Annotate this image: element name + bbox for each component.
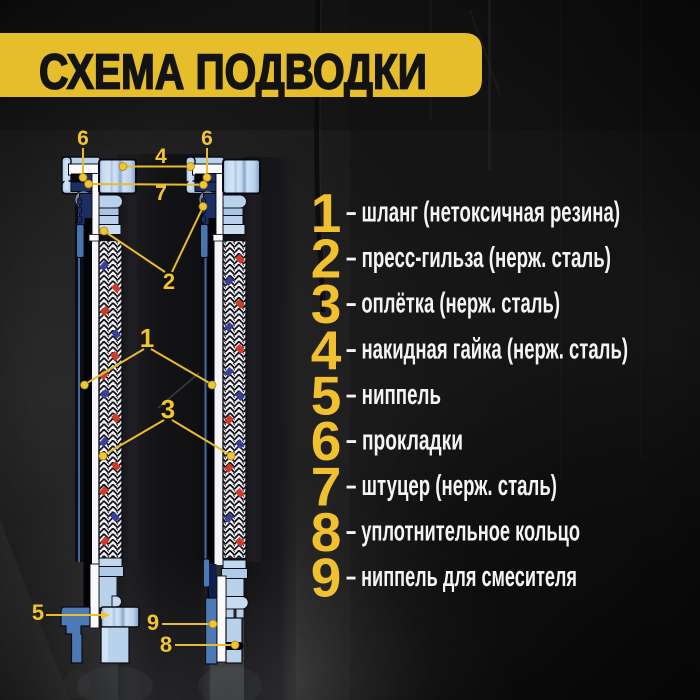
svg-text:2: 2 [163, 269, 175, 294]
svg-text:8: 8 [160, 632, 172, 657]
svg-text:9: 9 [147, 610, 159, 635]
svg-text:– штуцер (нерж. сталь): – штуцер (нерж. сталь) [346, 470, 557, 502]
svg-text:– ниппель: – ниппель [346, 379, 441, 411]
svg-text:4: 4 [155, 145, 167, 168]
svg-text:– оплётка (нерж. сталь): – оплётка (нерж. сталь) [346, 288, 560, 320]
svg-text:– уплотнительное кольцо: – уплотнительное кольцо [346, 516, 580, 548]
svg-text:– прокладки: – прокладки [346, 424, 463, 456]
svg-text:– пресс-гильза (нерж. сталь): – пресс-гильза (нерж. сталь) [346, 242, 611, 274]
svg-text:– накидная гайка (нерж. сталь): – накидная гайка (нерж. сталь) [346, 333, 628, 365]
svg-text:6: 6 [77, 127, 89, 150]
svg-text:СХЕМА ПОДВОДКИ: СХЕМА ПОДВОДКИ [39, 46, 427, 100]
svg-text:6: 6 [201, 127, 213, 150]
svg-text:5: 5 [32, 600, 44, 625]
svg-text:– шланг (нетоксичная резина): – шланг (нетоксичная резина) [346, 197, 620, 229]
